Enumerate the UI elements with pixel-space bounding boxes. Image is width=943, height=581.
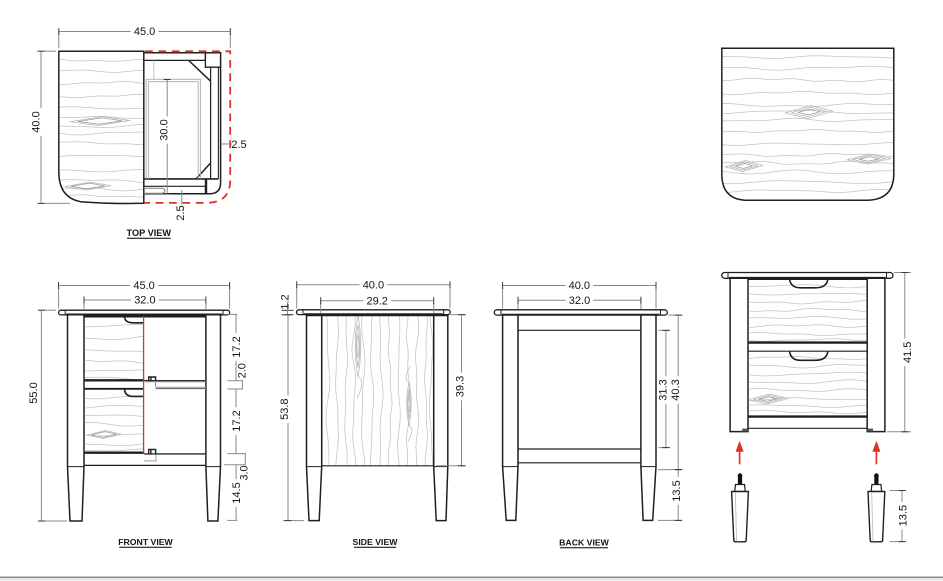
svg-text:TOP VIEW: TOP VIEW bbox=[127, 228, 172, 238]
svg-text:2.5: 2.5 bbox=[231, 139, 246, 151]
svg-text:BACK VIEW: BACK VIEW bbox=[559, 537, 610, 547]
svg-text:45.0: 45.0 bbox=[133, 280, 154, 292]
svg-text:40.0: 40.0 bbox=[31, 111, 43, 132]
svg-text:14.5: 14.5 bbox=[231, 482, 243, 503]
svg-text:40.3: 40.3 bbox=[670, 379, 682, 400]
svg-text:40.0: 40.0 bbox=[569, 280, 590, 292]
svg-text:2.0: 2.0 bbox=[237, 363, 249, 378]
svg-text:31.3: 31.3 bbox=[657, 379, 669, 400]
svg-text:53.8: 53.8 bbox=[279, 398, 291, 419]
svg-text:41.5: 41.5 bbox=[902, 342, 914, 363]
svg-text:29.2: 29.2 bbox=[366, 295, 387, 307]
svg-text:32.0: 32.0 bbox=[134, 295, 155, 307]
svg-text:40.0: 40.0 bbox=[363, 279, 384, 291]
svg-text:17.2: 17.2 bbox=[231, 336, 243, 357]
svg-text:2.5: 2.5 bbox=[175, 205, 187, 220]
svg-text:13.5: 13.5 bbox=[671, 480, 683, 501]
svg-text:30.0: 30.0 bbox=[158, 119, 170, 140]
svg-text:SIDE VIEW: SIDE VIEW bbox=[353, 537, 399, 547]
svg-text:1.2: 1.2 bbox=[279, 294, 291, 309]
svg-text:17.2: 17.2 bbox=[231, 410, 243, 431]
svg-text:3.0: 3.0 bbox=[239, 465, 251, 480]
svg-text:32.0: 32.0 bbox=[569, 295, 590, 307]
svg-text:13.5: 13.5 bbox=[898, 505, 910, 526]
svg-text:39.3: 39.3 bbox=[454, 376, 466, 397]
svg-text:45.0: 45.0 bbox=[134, 26, 155, 38]
svg-text:55.0: 55.0 bbox=[28, 382, 40, 403]
svg-text:FRONT VIEW: FRONT VIEW bbox=[118, 537, 173, 547]
